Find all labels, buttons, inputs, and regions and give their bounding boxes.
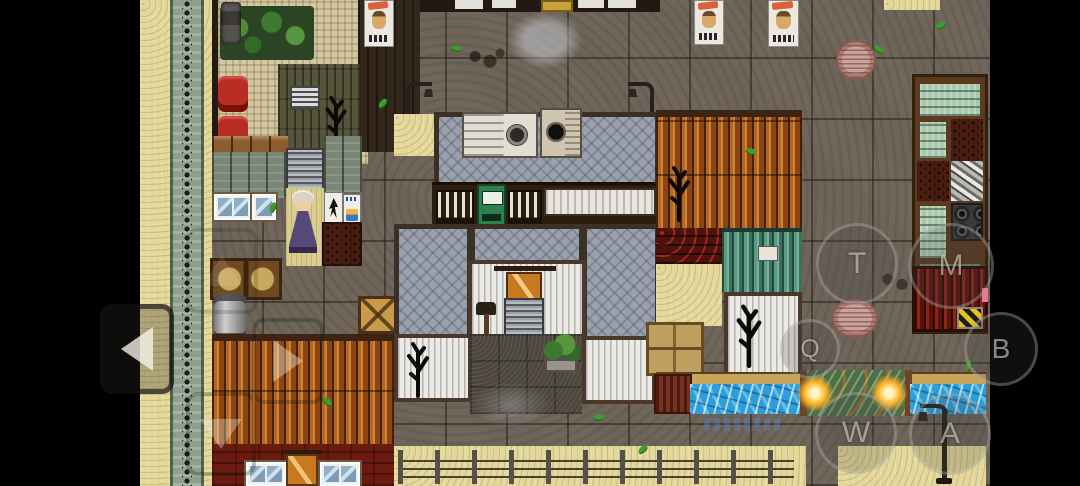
crack-decal-icon — [658, 162, 700, 222]
roller-shutter — [286, 148, 324, 192]
button-label: T — [848, 247, 866, 281]
lamp-mat — [394, 114, 438, 156]
washing-machine — [462, 112, 538, 158]
crack-decal-icon — [400, 338, 436, 398]
ninja-figure-icon — [329, 198, 338, 218]
banner-caption — [369, 35, 389, 42]
graffiti — [704, 418, 784, 431]
action-button-t[interactable]: T — [816, 223, 898, 305]
bottle-rack — [322, 222, 362, 266]
left-arrow-icon — [121, 327, 153, 371]
roof-tag — [758, 246, 778, 261]
building-window — [320, 462, 360, 486]
locker-cabinets — [212, 152, 288, 198]
action-button-m[interactable]: M — [908, 223, 994, 309]
npc-face — [295, 200, 311, 212]
right-arrow-icon — [273, 340, 303, 382]
action-button-q[interactable]: Q — [780, 319, 840, 379]
letterbox-right — [990, 0, 1080, 486]
shuttered-window — [582, 336, 656, 404]
lattice-window — [508, 190, 542, 226]
poster-ninja — [324, 192, 343, 224]
green-shelf — [917, 119, 949, 161]
window-pane — [267, 466, 282, 482]
poster-caption — [346, 197, 358, 201]
dust-patch — [508, 12, 582, 68]
lamp-base — [936, 478, 952, 484]
lamp-head — [628, 89, 637, 97]
window-pane — [341, 466, 356, 482]
banner-caption — [773, 35, 794, 42]
sand-edge-top — [884, 0, 940, 10]
dpad-left-button[interactable] — [100, 304, 174, 394]
red-armchair — [218, 76, 248, 112]
white-storefront-panel — [544, 188, 656, 216]
shoji-panel — [455, 0, 483, 9]
lamp-head — [424, 89, 433, 97]
window-pane — [234, 198, 248, 216]
courtyard-pavement — [394, 224, 472, 340]
house-sign — [506, 272, 542, 300]
action-button-w[interactable]: W — [815, 392, 897, 474]
button-label: M — [939, 249, 964, 283]
canal-water — [690, 384, 802, 414]
poster-graphic — [346, 209, 358, 221]
shop-sign — [286, 454, 318, 486]
button-label: W — [842, 416, 870, 450]
hanging-banner — [694, 0, 724, 45]
window-pane — [218, 198, 232, 216]
banner-scribble — [368, 1, 389, 10]
shoji-panel — [608, 0, 636, 8]
bonsai-foliage — [542, 334, 580, 364]
shutter-door[interactable] — [504, 298, 544, 338]
banner-scribble — [698, 1, 719, 10]
washer-door — [506, 124, 528, 146]
locker-cabinets — [324, 136, 362, 192]
banner-caption — [699, 33, 719, 40]
action-button-a[interactable]: A — [909, 393, 991, 475]
green-shelf — [917, 81, 983, 119]
red-rack — [917, 161, 949, 201]
red-shelf-wall — [656, 228, 722, 264]
button-label: B — [992, 333, 1011, 365]
game-screen: T M Q B W A — [0, 0, 1080, 486]
culvert-grate — [654, 374, 692, 414]
hanging-banner — [364, 0, 394, 47]
letterbox-left — [0, 0, 140, 486]
action-button-b[interactable]: B — [964, 312, 1038, 386]
sand-patch-east — [656, 264, 722, 326]
vending-machine[interactable] — [477, 184, 506, 228]
gold-altar — [541, 0, 573, 12]
shoji-panel — [578, 0, 604, 8]
dpad-up-button[interactable] — [186, 228, 258, 314]
up-arrow-icon — [202, 256, 242, 286]
red-rack — [951, 119, 983, 161]
banner-portrait — [702, 11, 716, 28]
npc-dress — [289, 211, 317, 253]
wooden-crate — [358, 296, 398, 334]
bonsai-planter — [542, 334, 580, 372]
crack-decal-icon — [732, 298, 766, 370]
lattice-window — [436, 190, 474, 226]
hanging-banner — [768, 0, 799, 47]
stone-lantern — [221, 2, 241, 44]
sign-bracket — [494, 266, 556, 271]
banner-portrait — [776, 11, 791, 29]
window-pane — [324, 466, 339, 482]
manhole-plaque — [836, 40, 876, 80]
npc-elderly-woman[interactable] — [288, 190, 318, 260]
down-arrow-icon — [200, 419, 242, 449]
rubble-patch — [460, 42, 510, 74]
button-label: A — [940, 417, 960, 451]
junk-pile — [951, 161, 983, 201]
dpad-down-button[interactable] — [186, 392, 256, 476]
banner-portrait — [372, 11, 386, 29]
ac-fan — [546, 122, 566, 142]
light-dust-patch — [472, 382, 550, 428]
ac-unit — [540, 108, 582, 158]
vending-slot — [482, 214, 501, 221]
shop-window — [214, 194, 252, 220]
banner-scribble — [772, 1, 794, 10]
vending-panel — [482, 191, 503, 205]
shoji-panel — [492, 0, 516, 8]
button-label: Q — [800, 335, 819, 364]
cardboard-boxes — [646, 322, 704, 376]
barbed-wire-fence — [398, 450, 794, 484]
dpad-right-button[interactable] — [252, 318, 324, 404]
